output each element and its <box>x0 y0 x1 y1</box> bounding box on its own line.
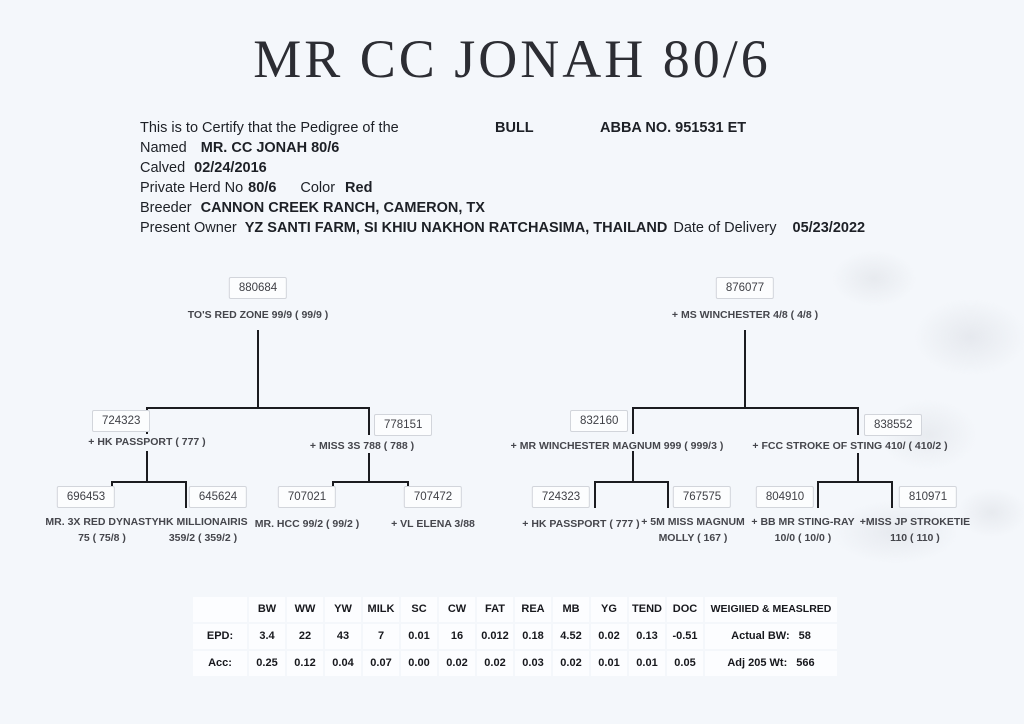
epd-header: SC <box>401 597 437 622</box>
name-dam: + MS WINCHESTER 4/8 ( 4/8 ) <box>672 307 818 323</box>
name-sire-dam: + MISS 3S 788 ( 788 ) <box>310 438 414 454</box>
reg-box-ss-sire: 696453 <box>57 486 115 508</box>
color-value: Red <box>345 180 372 196</box>
pedigree-certificate: MR CC JONAH 80/6 This is to Certify that… <box>0 0 1024 724</box>
name-line2: 110 ( 110 ) <box>860 530 970 546</box>
tree-line <box>594 481 596 508</box>
epd-header: BW <box>249 597 285 622</box>
named-value: MR. CC JONAH 80/6 <box>201 140 340 156</box>
epd-header: FAT <box>477 597 513 622</box>
tree-line <box>632 451 634 483</box>
name-dam-dam: + FCC STROKE OF STING 410/ ( 410/2 ) <box>752 438 947 454</box>
name-dam-sire: + MR WINCHESTER MAGNUM 999 ( 999/3 ) <box>511 438 724 454</box>
epd-header: MB <box>553 597 589 622</box>
epd-header: YW <box>325 597 361 622</box>
herd-label: Private Herd No <box>140 180 243 196</box>
acc-value: 0.04 <box>325 651 361 676</box>
epd-header-weighed: WEIGIIED & MEASLRED <box>705 597 837 622</box>
name-line2: 10/0 ( 10/0 ) <box>751 530 854 546</box>
tree-line <box>146 407 370 409</box>
calved-label: Calved <box>140 160 185 176</box>
delivery-label: Date of Delivery <box>673 220 776 236</box>
breeder-value: CANNON CREEK RANCH, CAMERON, TX <box>201 200 485 216</box>
reg-box-sire-sire: 724323 <box>92 410 150 432</box>
epd-header: MILK <box>363 597 399 622</box>
epd-value: 0.18 <box>515 624 551 649</box>
epd-header: TEND <box>629 597 665 622</box>
acc-value: 0.01 <box>591 651 627 676</box>
adj-205-label: Adj 205 Wt: <box>727 651 787 676</box>
name-ds-sire: + HK PASSPORT ( 777 ) <box>522 516 639 532</box>
owner-value: YZ SANTI FARM, SI KHIU NAKHON RATCHASIMA… <box>245 220 668 236</box>
epd-value: 22 <box>287 624 323 649</box>
name-line1: + 5M MISS MAGNUM <box>641 514 745 530</box>
reg-box-dam: 876077 <box>716 277 774 299</box>
tree-line <box>817 481 819 508</box>
calved-value: 02/24/2016 <box>194 160 267 176</box>
epd-table: BW WW YW MILK SC CW FAT REA MB YG TEND D… <box>193 597 837 676</box>
tree-line <box>667 481 669 508</box>
epd-header: WW <box>287 597 323 622</box>
reg-box-dd-dam: 810971 <box>899 486 957 508</box>
name-line1: MR. 3X RED DYNASTY <box>45 514 158 530</box>
acc-value: 0.05 <box>667 651 703 676</box>
herd-value: 80/6 <box>248 180 276 196</box>
adj-205-cell: Adj 205 Wt:566 <box>705 651 837 676</box>
acc-value: 0.00 <box>401 651 437 676</box>
acc-value: 0.03 <box>515 651 551 676</box>
acc-value: 0.12 <box>287 651 323 676</box>
epd-value: -0.51 <box>667 624 703 649</box>
tree-line <box>146 451 148 483</box>
epd-value: 43 <box>325 624 361 649</box>
tree-line <box>632 407 859 409</box>
reg-box-ds-dam: 767575 <box>673 486 731 508</box>
reg-box-ds-sire: 724323 <box>532 486 590 508</box>
acc-value: 0.01 <box>629 651 665 676</box>
name-sire: TO'S RED ZONE 99/9 ( 99/9 ) <box>188 307 329 323</box>
tree-line <box>891 481 893 508</box>
breeder-line: BreederCANNON CREEK RANCH, CAMERON, TX <box>140 200 485 216</box>
adj-205-value: 566 <box>796 651 814 676</box>
certify-intro: This is to Certify that the Pedigree of … <box>140 120 399 136</box>
name-sire-sire: + HK PASSPORT ( 777 ) <box>88 434 205 450</box>
reg-box-sd-dam: 707472 <box>404 486 462 508</box>
name-line1: HK MILLIONAIRIS <box>158 514 247 530</box>
name-ss-dam: HK MILLIONAIRIS359/2 ( 359/2 ) <box>158 514 247 546</box>
calved-line: Calved02/24/2016 <box>140 160 267 176</box>
tree-line <box>857 453 859 483</box>
reg-box-sd-sire: 707021 <box>278 486 336 508</box>
color-label: Color <box>300 180 335 196</box>
name-sd-dam: + VL ELENA 3/88 <box>391 516 475 532</box>
owner-line: Present OwnerYZ SANTI FARM, SI KHIU NAKH… <box>140 220 865 236</box>
reg-box-ss-dam: 645624 <box>189 486 247 508</box>
owner-label: Present Owner <box>140 220 237 236</box>
named-label: Named <box>140 140 187 156</box>
epd-value: 16 <box>439 624 475 649</box>
name-ds-dam: + 5M MISS MAGNUMMOLLY ( 167 ) <box>641 514 745 546</box>
actual-bw-value: 58 <box>799 624 811 649</box>
epd-value: 4.52 <box>553 624 589 649</box>
reg-box-dam-dam: 838552 <box>864 414 922 436</box>
epd-header: REA <box>515 597 551 622</box>
named-line: NamedMR. CC JONAH 80/6 <box>140 140 339 156</box>
tree-line <box>594 481 669 483</box>
acc-value: 0.07 <box>363 651 399 676</box>
reg-box-sire: 880684 <box>229 277 287 299</box>
epd-row-label: EPD: <box>193 624 247 649</box>
epd-value: 3.4 <box>249 624 285 649</box>
reg-box-dam-sire: 832160 <box>570 410 628 432</box>
name-line2: MOLLY ( 167 ) <box>641 530 745 546</box>
epd-value: 0.13 <box>629 624 665 649</box>
certificate-title: MR CC JONAH 80/6 <box>0 28 1024 90</box>
name-line1: +MISS JP STROKETIE <box>860 514 970 530</box>
name-dd-sire: + BB MR STING-RAY10/0 ( 10/0 ) <box>751 514 854 546</box>
epd-header-blank <box>193 597 247 622</box>
tree-line <box>857 407 859 435</box>
herd-color-line: Private Herd No80/6ColorRed <box>140 180 372 196</box>
name-ss-sire: MR. 3X RED DYNASTY75 ( 75/8 ) <box>45 514 158 546</box>
epd-value: 0.01 <box>401 624 437 649</box>
abba-number: ABBA NO. 951531 ET <box>600 120 746 136</box>
epd-value: 0.02 <box>591 624 627 649</box>
name-line1: + BB MR STING-RAY <box>751 514 854 530</box>
epd-header: CW <box>439 597 475 622</box>
actual-bw-label: Actual BW: <box>731 624 789 649</box>
tree-line <box>368 407 370 435</box>
reg-box-dd-sire: 804910 <box>756 486 814 508</box>
animal-type: BULL <box>495 120 534 136</box>
tree-line <box>744 330 746 408</box>
name-line2: 359/2 ( 359/2 ) <box>158 530 247 546</box>
breeder-label: Breeder <box>140 200 192 216</box>
name-dd-dam: +MISS JP STROKETIE110 ( 110 ) <box>860 514 970 546</box>
name-sd-sire: MR. HCC 99/2 ( 99/2 ) <box>255 516 359 532</box>
tree-line <box>111 481 187 483</box>
acc-value: 0.02 <box>477 651 513 676</box>
tree-line <box>332 481 409 483</box>
reg-box-sire-dam: 778151 <box>374 414 432 436</box>
tree-line <box>257 330 259 408</box>
epd-header: DOC <box>667 597 703 622</box>
actual-bw-cell: Actual BW:58 <box>705 624 837 649</box>
acc-value: 0.25 <box>249 651 285 676</box>
epd-header: YG <box>591 597 627 622</box>
name-line2: 75 ( 75/8 ) <box>45 530 158 546</box>
tree-line <box>632 407 634 434</box>
delivery-value: 05/23/2022 <box>793 220 866 236</box>
tree-line <box>368 453 370 483</box>
tree-line <box>817 481 893 483</box>
acc-row-label: Acc: <box>193 651 247 676</box>
acc-value: 0.02 <box>553 651 589 676</box>
tree-line <box>185 481 187 508</box>
epd-value: 7 <box>363 624 399 649</box>
acc-value: 0.02 <box>439 651 475 676</box>
epd-value: 0.012 <box>477 624 513 649</box>
